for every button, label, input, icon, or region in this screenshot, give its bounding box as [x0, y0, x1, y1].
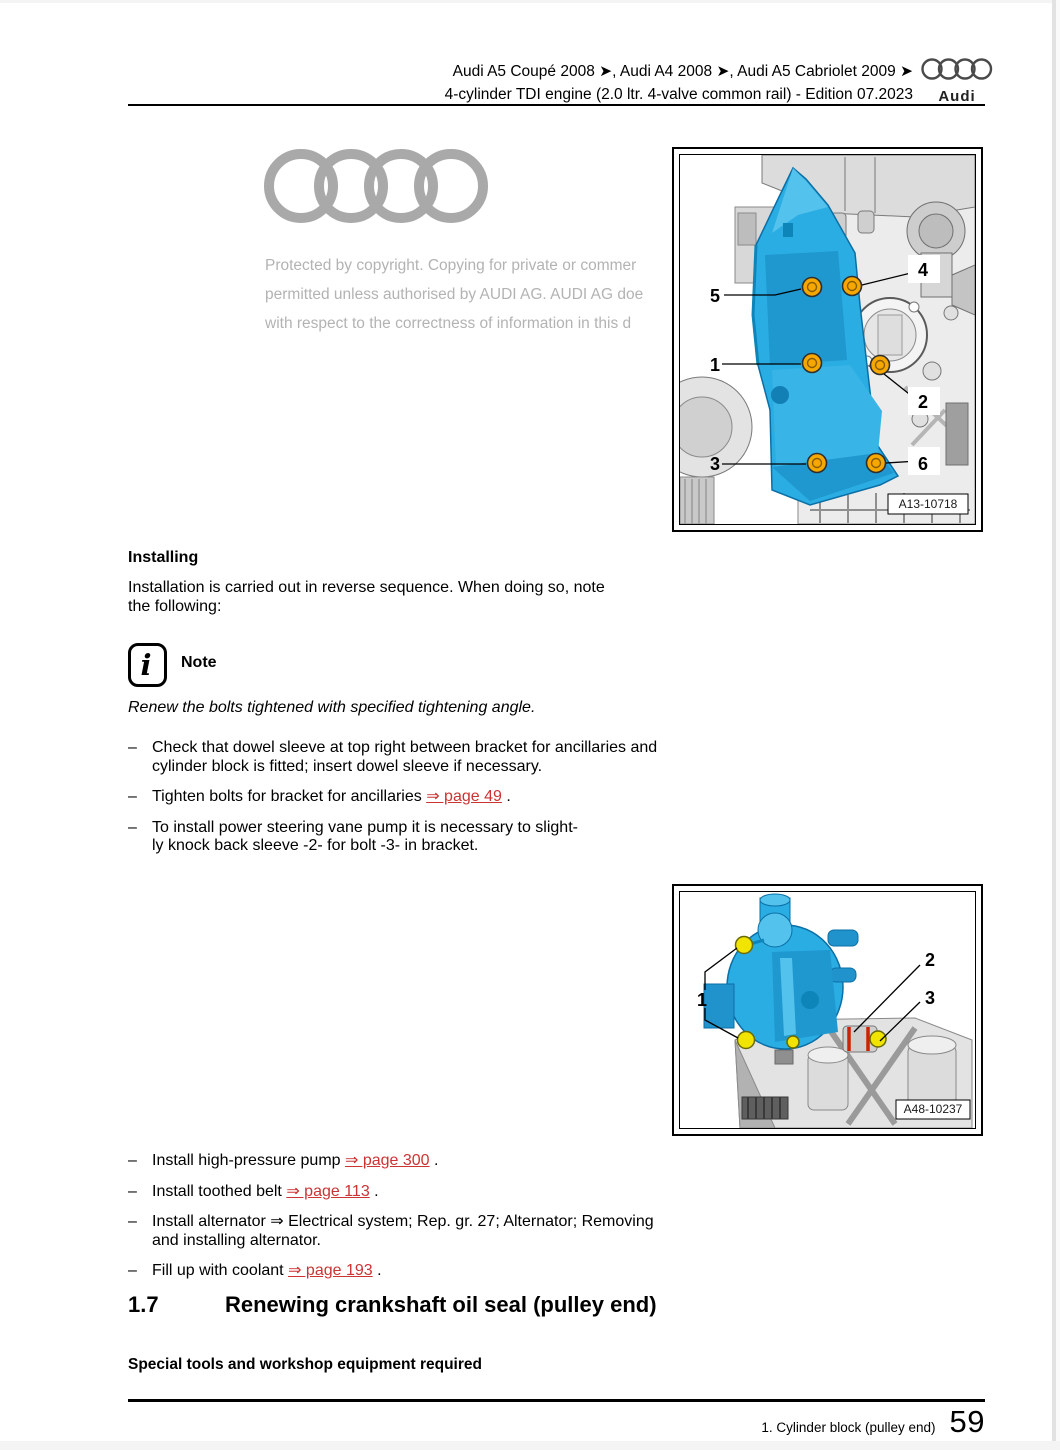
dash-bullet: – — [128, 1183, 152, 1202]
list-item-prefix: Tighten bolts for bracket for ancillarie… — [152, 788, 426, 805]
list-item-line: ly knock back sleeve -2- for bolt -3- in… — [152, 837, 478, 854]
list-item-text: Install high-pressure pump ⇒ page 300 . — [152, 1152, 673, 1171]
list-item-suffix: . — [430, 1152, 439, 1169]
callout-3: 3 — [710, 454, 720, 474]
footer-chapter: 1. Cylinder block (pulley end) — [761, 1420, 935, 1435]
list-item-prefix: Fill up with coolant — [152, 1262, 288, 1279]
dash-bullet: – — [128, 1213, 152, 1250]
vane-pump-illustration: 1 2 3 A48-10237 — [680, 892, 975, 1128]
watermark-text: Protected by copyright. Copying for priv… — [265, 251, 671, 338]
special-tools-subheading: Special tools and workshop equipment req… — [128, 1356, 482, 1374]
info-i-glyph: i — [140, 651, 154, 680]
callout-1: 1 — [697, 990, 707, 1010]
list-item-text: Check that dowel sleeve at top right bet… — [152, 739, 673, 776]
dash-bullet: – — [128, 788, 152, 807]
figure-bracket-bolts: 5 4 1 2 3 6 A13-10718 — [672, 147, 983, 532]
list-item-prefix: Install toothed belt — [152, 1183, 286, 1200]
page-edge-top — [0, 0, 1060, 3]
engine-bracket-illustration: 5 4 1 2 3 6 A13-10718 — [680, 155, 975, 524]
header-engine-line: 4-cylinder TDI engine (2.0 ltr. 4-valve … — [445, 83, 913, 106]
bolt-2-icon — [871, 356, 890, 375]
page-link-113[interactable]: ⇒ page 113 — [286, 1183, 369, 1200]
bolt-5-icon — [803, 278, 822, 297]
list-item-suffix: . — [370, 1183, 379, 1200]
manual-page: Audi A5 Coupé 2008 ➤, Audi A4 2008 ➤, Au… — [0, 0, 1060, 1450]
list-item-suffix: . — [373, 1262, 382, 1279]
page-link-193[interactable]: ⇒ page 193 — [288, 1262, 373, 1279]
audi-wordmark: Audi — [921, 88, 993, 105]
dash-bullet: – — [128, 819, 152, 856]
list-item: – Fill up with coolant ⇒ page 193 . — [128, 1262, 673, 1281]
note-italic-text: Renew the bolts tightened with specified… — [128, 699, 535, 717]
dash-bullet: – — [128, 1262, 152, 1281]
dash-bullet: – — [128, 739, 152, 776]
figure-id-label: A48-10237 — [896, 1100, 970, 1119]
callout-3: 3 — [925, 988, 935, 1008]
note-icon: i — [128, 643, 167, 687]
installing-heading: Installing — [128, 549, 198, 567]
callout-6: 6 — [918, 454, 928, 474]
bolt-4-icon — [843, 277, 862, 296]
header: Audi A5 Coupé 2008 ➤, Audi A4 2008 ➤, Au… — [445, 60, 913, 106]
figure-bracket-bolts-inner: 5 4 1 2 3 6 A13-10718 — [679, 154, 976, 525]
page-edge-bottom — [0, 1441, 1060, 1450]
callout-4: 4 — [918, 260, 928, 280]
installing-paragraph: Installation is carried out in reverse s… — [128, 579, 628, 616]
audi-logo: Audi — [921, 56, 993, 105]
section-title: Renewing crankshaft oil seal (pulley end… — [225, 1291, 685, 1318]
bolt-6-icon — [867, 454, 886, 473]
page-edge-right-light — [1056, 0, 1060, 1450]
pump-highlight-art — [704, 894, 858, 1049]
audi-rings-icon — [921, 56, 993, 82]
figure-id: A13-10718 — [899, 497, 958, 511]
list-item-line: To install power steering vane pump it i… — [152, 819, 578, 836]
note-label: Note — [181, 654, 217, 672]
header-models-line: Audi A5 Coupé 2008 ➤, Audi A4 2008 ➤, Au… — [445, 60, 913, 83]
figure-id: A48-10237 — [904, 1102, 963, 1116]
instruction-list-1: – Check that dowel sleeve at top right b… — [128, 739, 673, 856]
list-item-suffix: . — [502, 788, 511, 805]
list-item: – Check that dowel sleeve at top right b… — [128, 739, 673, 776]
figure-vane-pump: 1 2 3 A48-10237 — [672, 884, 983, 1136]
watermark-rings-icon — [263, 140, 489, 237]
footer: 1. Cylinder block (pulley end) 59 — [761, 1404, 985, 1440]
list-item-text: Install toothed belt ⇒ page 113 . — [152, 1183, 673, 1202]
page-link-300[interactable]: ⇒ page 300 — [345, 1152, 430, 1169]
list-item: – Install toothed belt ⇒ page 113 . — [128, 1183, 673, 1202]
list-item: – Install alternator ⇒ Electrical system… — [128, 1213, 673, 1250]
section-number: 1.7 — [128, 1291, 225, 1318]
figure-vane-pump-inner: 1 2 3 A48-10237 — [679, 891, 976, 1129]
section-heading: 1.7 Renewing crankshaft oil seal (pulley… — [128, 1291, 685, 1318]
list-item-text: Tighten bolts for bracket for ancillarie… — [152, 788, 673, 807]
header-rule — [128, 104, 985, 106]
watermark-line: permitted unless authorised by AUDI AG. … — [265, 280, 671, 309]
figure-id-label: A13-10718 — [888, 494, 968, 514]
footer-page-number: 59 — [950, 1404, 985, 1440]
list-item: – Install high-pressure pump ⇒ page 300 … — [128, 1152, 673, 1171]
callout-2: 2 — [925, 950, 935, 970]
bolt-1-icon — [803, 354, 822, 373]
callout-2: 2 — [918, 392, 928, 412]
list-item: – Tighten bolts for bracket for ancillar… — [128, 788, 673, 807]
instruction-list-2: – Install high-pressure pump ⇒ page 300 … — [128, 1152, 673, 1281]
page-link-49[interactable]: ⇒ page 49 — [426, 788, 502, 805]
list-item-prefix: Install high-pressure pump — [152, 1152, 345, 1169]
list-item: – To install power steering vane pump it… — [128, 819, 673, 856]
callout-5: 5 — [710, 286, 720, 306]
watermark-line: Protected by copyright. Copying for priv… — [265, 251, 671, 280]
footer-rule — [128, 1399, 985, 1402]
dash-bullet: – — [128, 1152, 152, 1171]
list-item-text: To install power steering vane pump it i… — [152, 819, 673, 856]
list-item-text: Fill up with coolant ⇒ page 193 . — [152, 1262, 673, 1281]
bolt-3-icon — [808, 454, 827, 473]
callout-1: 1 — [710, 355, 720, 375]
watermark-line: with respect to the correctness of infor… — [265, 309, 671, 338]
list-item-text: Install alternator ⇒ Electrical system; … — [152, 1213, 673, 1250]
